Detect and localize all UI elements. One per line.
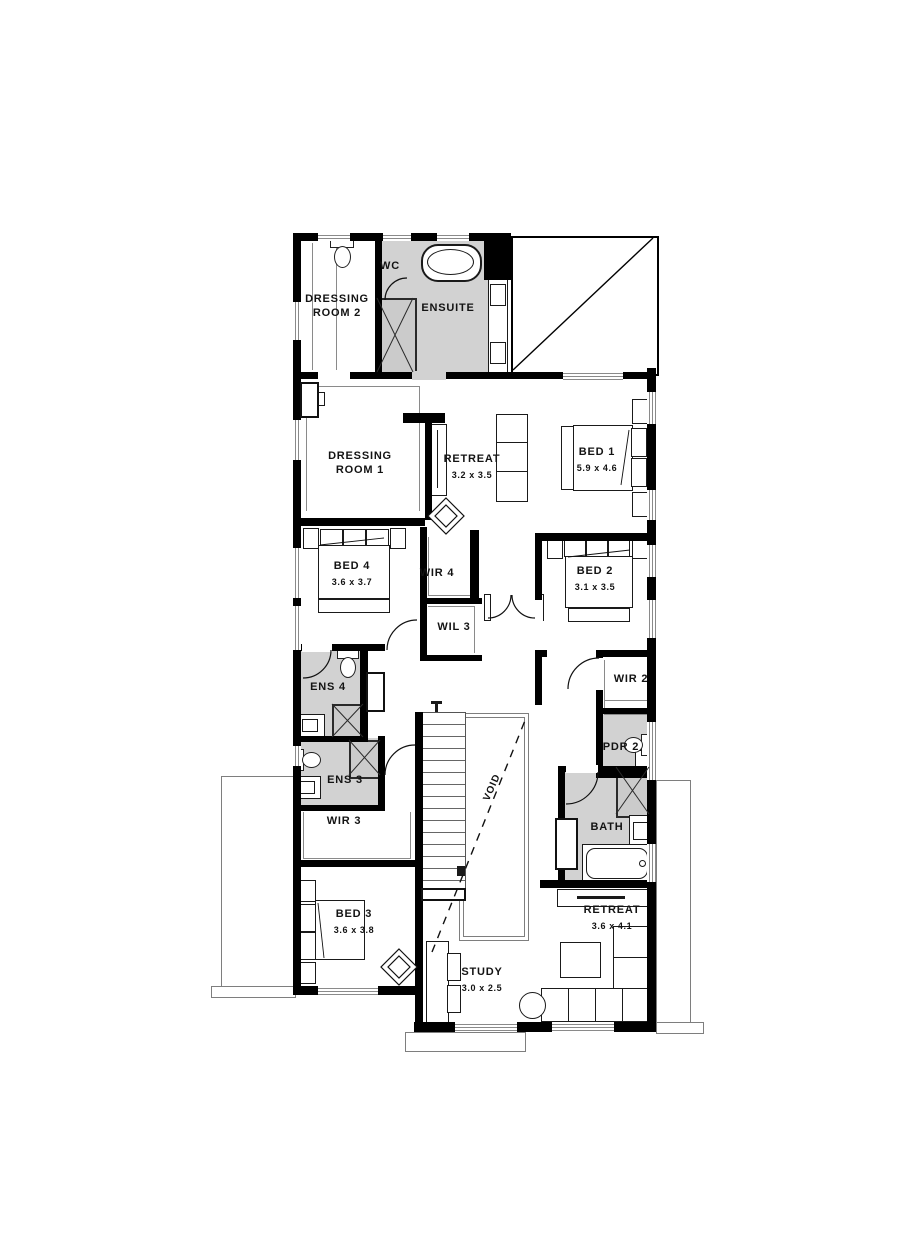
room-label-pdr-2: PDR 2	[589, 741, 653, 755]
wall-exterior-right	[647, 368, 656, 1032]
room-dims-study: 3.0 x 2.5	[438, 983, 526, 993]
door-gap-ensuite	[412, 371, 446, 380]
door-gap-ens4	[302, 643, 332, 652]
freestanding-bath-inner	[427, 249, 474, 275]
diamond-motif	[381, 949, 417, 985]
door-arc-hall-left	[488, 595, 511, 618]
bathtub-drain	[639, 860, 646, 867]
diamond-motif-inner	[435, 505, 457, 527]
wall-ensuite-corner	[484, 233, 511, 280]
stair-newel	[457, 866, 465, 876]
stair-landing	[421, 888, 466, 901]
wall-stairs-west	[415, 712, 423, 1031]
wall-wil3-bottom	[420, 655, 482, 661]
room-label-bed-2: BED 2	[553, 565, 637, 579]
gutter-strip-right	[656, 1022, 704, 1034]
wall-wir3-bottom	[293, 860, 422, 867]
room-label-dressing-room-2: DRESSING ROOM 2	[296, 293, 378, 321]
room-dims-bed-1: 5.9 x 4.6	[555, 463, 639, 473]
room-dims-retreat-lower: 3.6 x 4.1	[564, 921, 660, 931]
roof-outline-right	[656, 780, 691, 1025]
window	[293, 548, 301, 598]
wall-wir2-pdr2	[596, 708, 655, 714]
wall-ens4-ens3	[293, 736, 368, 742]
desk	[426, 941, 449, 1023]
stool	[519, 992, 546, 1019]
bed2-pillow	[586, 540, 608, 557]
stair-post-cap	[431, 701, 442, 704]
window	[318, 233, 350, 241]
window	[647, 545, 656, 577]
wall-dr1-bottom	[293, 518, 425, 526]
room-label-wir-4: WIR 4	[405, 567, 469, 581]
bed4-side-table	[390, 528, 406, 549]
bed4-pillow	[320, 529, 343, 546]
bed2-side-table	[547, 539, 563, 559]
room-label-ens-4: ENS 4	[296, 681, 360, 695]
room-dims-retreat-upper: 3.2 x 3.5	[430, 470, 514, 480]
room-label-wir-2: WIR 2	[599, 673, 663, 687]
wall-retreat-header	[403, 413, 445, 423]
window	[647, 490, 656, 520]
wall-bed2-bottom-west	[535, 650, 547, 657]
room-label-bed-1: BED 1	[555, 446, 639, 460]
room-label-retreat-lower: RETREAT	[564, 904, 660, 918]
side-table	[560, 942, 601, 978]
wall-bed2-top	[540, 533, 655, 541]
sink	[490, 342, 506, 364]
staircase	[422, 712, 466, 890]
window	[318, 986, 378, 995]
room-label-study: STUDY	[438, 966, 526, 980]
bed3-pillow	[300, 932, 316, 960]
room-label-wc: WC	[374, 260, 406, 274]
roof-outline-left	[221, 776, 295, 990]
door-arc-bed4	[387, 620, 417, 650]
wall-wir2-top	[596, 650, 655, 657]
hall-cupboard	[366, 672, 385, 712]
wall-hall-east-upper	[535, 650, 542, 705]
floor-plan: DRESSING ROOM 2 WC ENSUITE DRESSING ROOM…	[0, 0, 901, 1246]
door-gap-bath	[566, 765, 598, 773]
bed4-side-table	[303, 528, 319, 549]
bed4-foot-shelf	[318, 599, 390, 613]
wall-study-bottom	[414, 1022, 656, 1032]
room-dims-bed-4: 3.6 x 3.7	[311, 577, 393, 587]
window	[437, 233, 469, 241]
door-arc-ens3	[385, 745, 415, 775]
window	[383, 233, 411, 241]
room-label-dressing-room-1: DRESSING ROOM 1	[318, 450, 402, 478]
window	[455, 1022, 517, 1032]
window	[293, 606, 301, 650]
room-label-wir-3: WIR 3	[312, 815, 376, 829]
dr1-cabinet	[300, 382, 319, 418]
door-gap-bed2	[534, 600, 543, 624]
sink	[490, 284, 506, 306]
window	[647, 600, 656, 638]
room-label-bath: BATH	[575, 821, 639, 835]
window	[563, 371, 623, 380]
bed2-foot-shelf	[568, 608, 630, 622]
bed2-pillow	[564, 540, 586, 557]
window	[552, 1022, 614, 1032]
wall-wil3-top	[420, 598, 482, 604]
door-arc-hall-right	[512, 595, 535, 618]
sofa-seat	[496, 414, 528, 444]
wall-wir4-east	[470, 530, 479, 603]
sofa-seat	[568, 988, 597, 1022]
bed2-side-table	[632, 539, 648, 559]
bed4-pillow	[343, 529, 366, 546]
diamond-motif	[428, 498, 464, 534]
diamond-motif-inner	[388, 956, 410, 978]
roof-void-square	[511, 236, 659, 376]
porch-outline	[405, 1032, 526, 1052]
sofa-seat	[595, 988, 624, 1022]
room-label-wil-3: WIL 3	[422, 621, 486, 635]
window	[647, 392, 656, 424]
bed4-pillow	[366, 529, 389, 546]
wall-ens3-east	[378, 736, 385, 808]
room-dims-bed-2: 3.1 x 3.5	[553, 582, 637, 592]
toilet-wc-bowl	[334, 246, 351, 268]
room-label-bed-3: BED 3	[314, 908, 394, 922]
gutter-strip-left	[211, 986, 296, 998]
room-label-retreat-upper: RETREAT	[430, 453, 514, 467]
wall-ens3-wir3	[293, 805, 385, 811]
wall-bath-retreat	[540, 880, 655, 888]
dresser-handle	[577, 896, 625, 899]
door-jamb	[484, 594, 491, 621]
room-label-ens-3: ENS 3	[313, 774, 377, 788]
room-label-ensuite: ENSUITE	[408, 302, 488, 316]
window	[647, 844, 656, 882]
door-gap-dr2	[318, 371, 350, 380]
toilet-ens4-bowl	[340, 657, 356, 678]
room-label-bed-4: BED 4	[311, 560, 393, 574]
void-outline-inner	[463, 717, 525, 937]
vanity-ens4-sink	[302, 719, 318, 732]
window	[293, 746, 301, 766]
toilet-ens3-bowl	[302, 752, 321, 768]
window	[293, 420, 301, 460]
room-dims-bed-3: 3.6 x 3.8	[314, 925, 394, 935]
bed2-pillow	[608, 540, 630, 557]
